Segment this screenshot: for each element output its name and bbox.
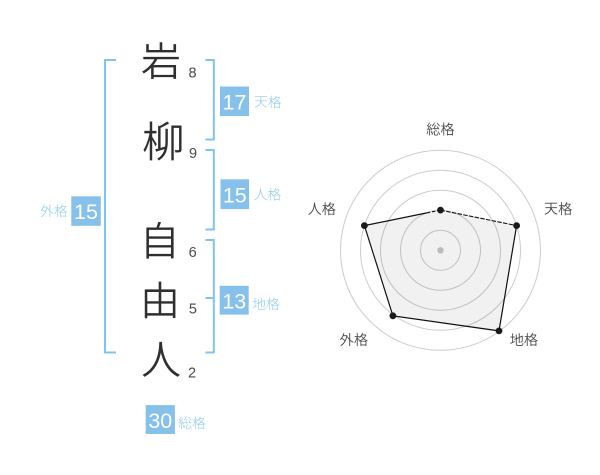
svg-text:2: 2 <box>188 366 196 382</box>
svg-text:13: 13 <box>222 289 246 313</box>
svg-text:6: 6 <box>189 245 197 261</box>
svg-text:9: 9 <box>189 146 197 162</box>
svg-text:17: 17 <box>223 91 247 115</box>
svg-text:8: 8 <box>189 66 197 82</box>
svg-text:15: 15 <box>223 183 247 207</box>
svg-text:15: 15 <box>74 200 98 224</box>
svg-text:5: 5 <box>189 302 197 318</box>
svg-text:30: 30 <box>148 409 172 433</box>
